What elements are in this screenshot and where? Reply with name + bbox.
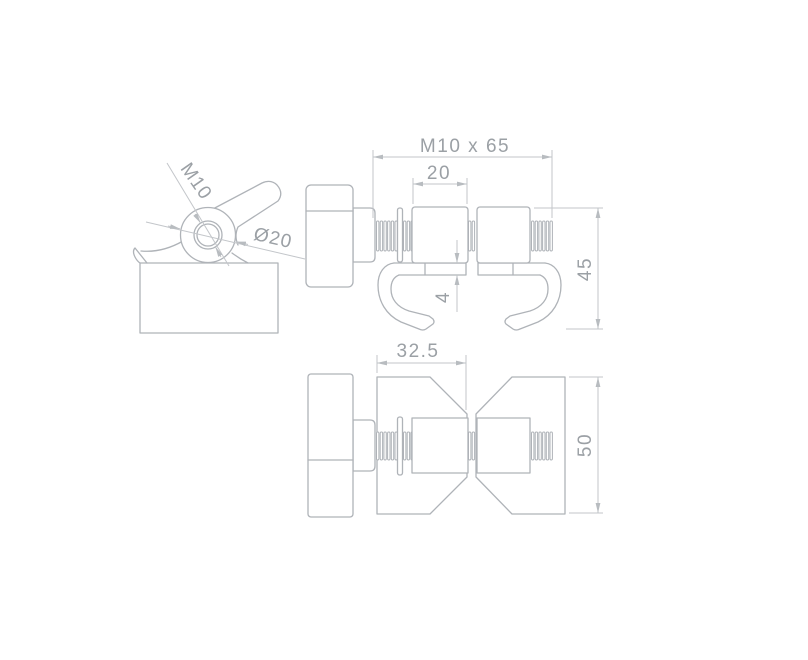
knob-diameter-label: Ø20 bbox=[252, 224, 295, 253]
hub-fillet-right bbox=[232, 253, 248, 263]
knob-stem-top bbox=[353, 420, 375, 471]
thread-rib bbox=[550, 432, 552, 460]
thread-rib bbox=[407, 432, 409, 460]
top-view: 32.5 50 bbox=[308, 341, 603, 517]
thread-rib bbox=[532, 432, 534, 460]
thread-section-right bbox=[532, 221, 553, 251]
block-width-label: 20 bbox=[427, 163, 451, 184]
thread-rib bbox=[469, 221, 471, 251]
thread-size-label: M10 bbox=[176, 159, 216, 204]
thread-rib bbox=[407, 221, 409, 251]
hub-circle bbox=[181, 208, 236, 263]
side-view: M10 Ø20 bbox=[134, 159, 306, 333]
thread-rib bbox=[539, 221, 541, 251]
thread-rib bbox=[472, 221, 474, 251]
thread-rib bbox=[543, 221, 545, 251]
traveler-block-left bbox=[412, 207, 468, 263]
thread-section-left bbox=[377, 221, 398, 251]
rod-dimension-label: M10 x 65 bbox=[420, 136, 510, 157]
traveler-block-right-top bbox=[477, 418, 530, 473]
thread-rib bbox=[535, 221, 537, 251]
thread-rib bbox=[535, 432, 537, 460]
thread-rib bbox=[377, 432, 379, 460]
traveler-block-left-top bbox=[412, 418, 468, 473]
thread-rib bbox=[404, 221, 406, 251]
hook-tip-side bbox=[134, 248, 148, 263]
wing-knob-top bbox=[308, 374, 353, 517]
height-dimension-label: 45 bbox=[575, 257, 596, 281]
thread-rib bbox=[377, 221, 379, 251]
plate-thickness-label: 4 bbox=[433, 291, 454, 303]
thread-rib bbox=[404, 432, 406, 460]
thread-rib bbox=[550, 221, 552, 251]
front-view: M10 x 65 20 45 4 bbox=[306, 136, 603, 330]
clamp-plate-right bbox=[478, 263, 545, 275]
thread-rib bbox=[472, 432, 474, 460]
knob-stem-front bbox=[353, 208, 375, 262]
clamp-technical-drawing: M10 Ø20 M10 x 65 bbox=[0, 0, 808, 660]
thread-rib bbox=[546, 432, 548, 460]
thread-rib bbox=[546, 221, 548, 251]
depth-dimension-label: 50 bbox=[575, 433, 596, 457]
wing-knob-front bbox=[306, 185, 353, 287]
thread-rib bbox=[380, 432, 382, 460]
thread-rib bbox=[384, 221, 386, 251]
clamp-plate-left bbox=[394, 263, 466, 275]
thread-section-center bbox=[469, 221, 475, 251]
thread-rib bbox=[543, 432, 545, 460]
thread-rib bbox=[388, 221, 390, 251]
thread-section-center-top bbox=[469, 432, 475, 460]
thread-rib bbox=[532, 221, 534, 251]
thread-rib bbox=[539, 432, 541, 460]
washer-disc bbox=[398, 208, 403, 262]
washer-disc-top bbox=[398, 417, 403, 475]
hub-fillet-left bbox=[141, 241, 183, 251]
thread-rib bbox=[391, 221, 393, 251]
base-block-side bbox=[140, 263, 278, 333]
thread-rib bbox=[384, 432, 386, 460]
traveler-block-right bbox=[477, 207, 530, 263]
thread-rib bbox=[380, 221, 382, 251]
thread-rib bbox=[469, 432, 471, 460]
thread-rib bbox=[388, 432, 390, 460]
technical-drawing-page: M10 Ø20 M10 x 65 bbox=[0, 0, 808, 660]
jaw-width-label: 32.5 bbox=[397, 341, 440, 362]
thread-rib bbox=[391, 432, 393, 460]
